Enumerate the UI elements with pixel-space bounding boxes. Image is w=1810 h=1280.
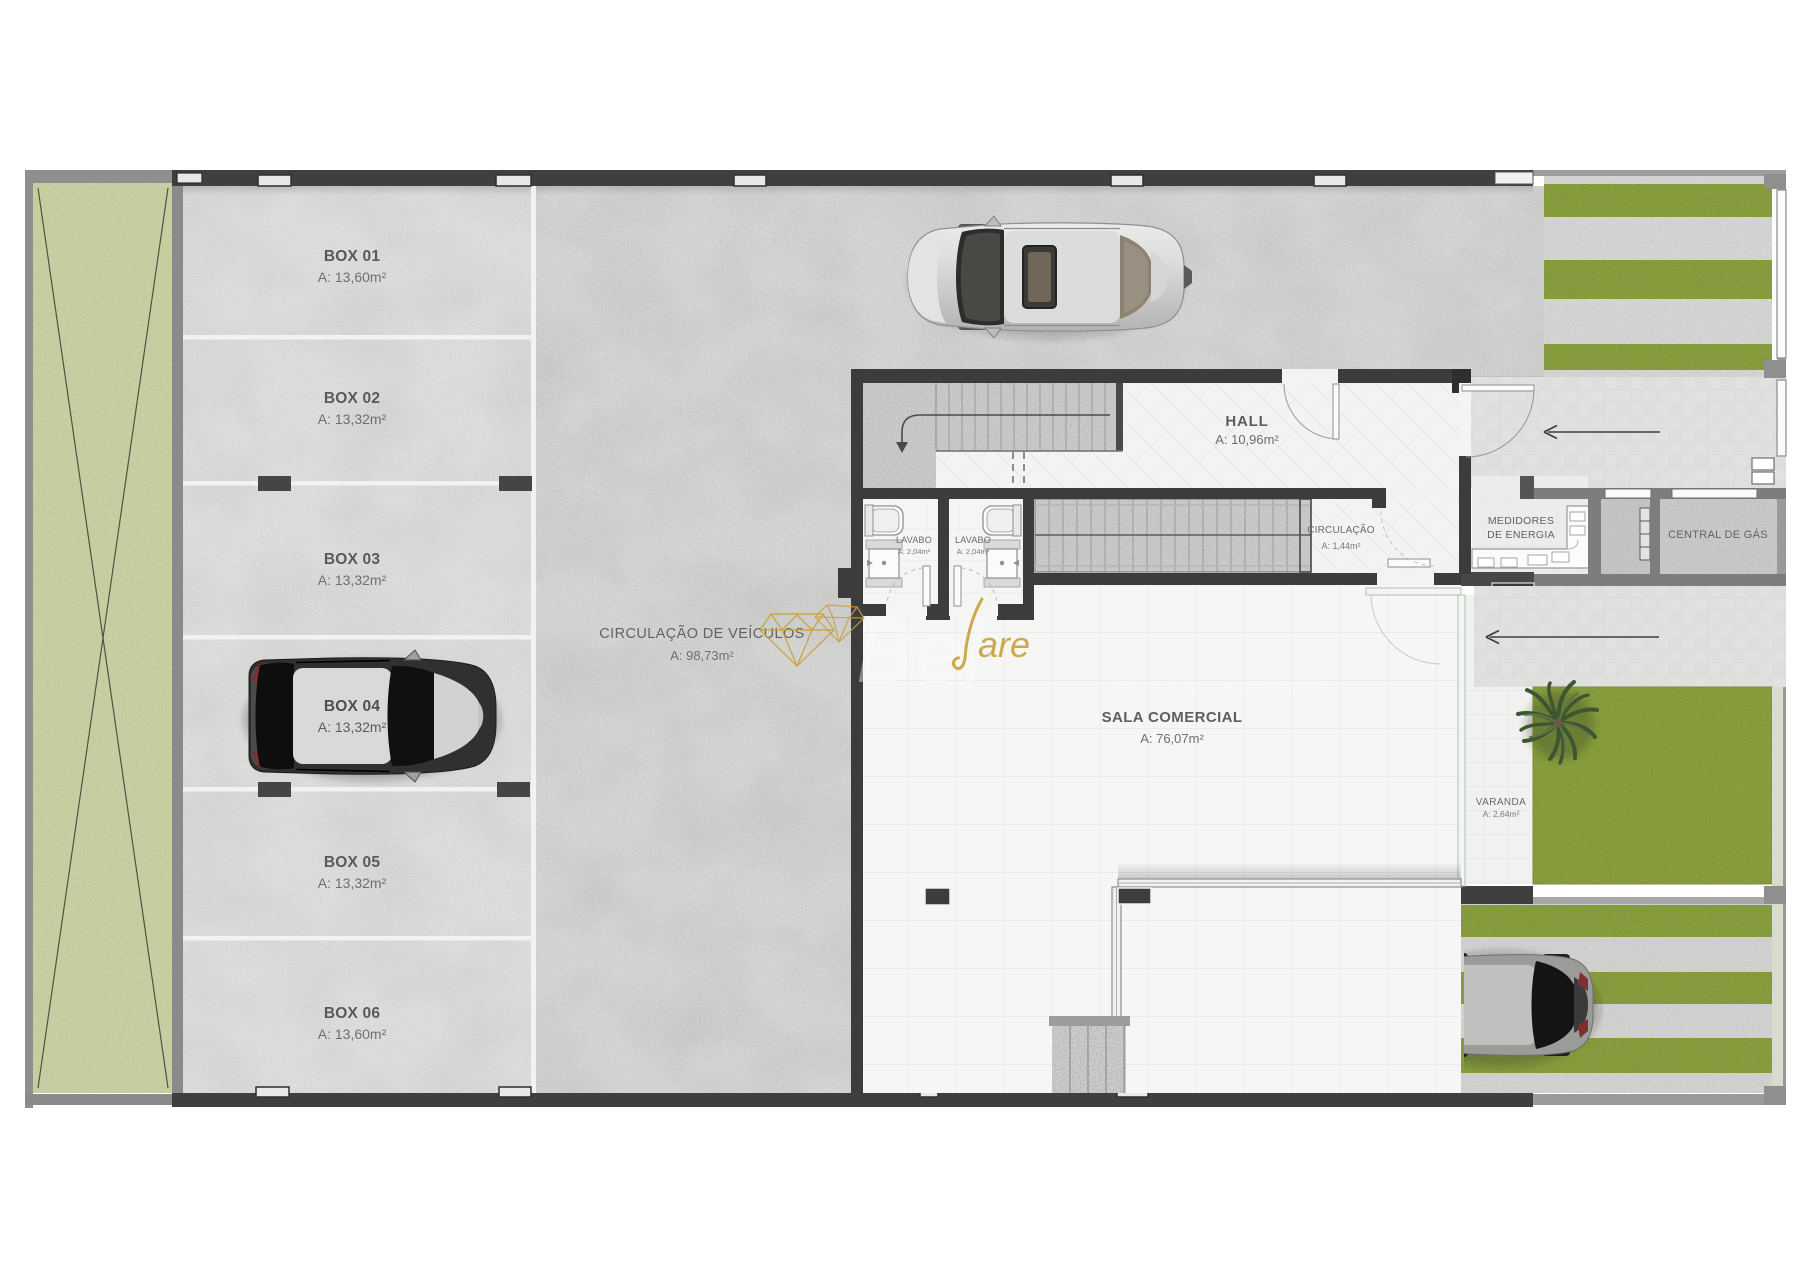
svg-text:A: 13,32m²: A: 13,32m² [318, 719, 387, 735]
svg-text:DE ENERGIA: DE ENERGIA [1487, 529, 1555, 541]
svg-text:A: 13,32m²: A: 13,32m² [318, 572, 387, 588]
svg-text:A: 13,32m²: A: 13,32m² [318, 875, 387, 891]
svg-text:SALA COMERCIAL: SALA COMERCIAL [1102, 709, 1243, 726]
svg-text:BOX 04: BOX 04 [324, 698, 381, 715]
svg-text:A: 2,04m²: A: 2,04m² [957, 547, 990, 556]
svg-text:BOX 01: BOX 01 [324, 248, 381, 265]
svg-text:BOX 06: BOX 06 [324, 1005, 381, 1022]
svg-text:A: 98,73m²: A: 98,73m² [670, 648, 734, 663]
svg-text:CIRCULAÇÃO: CIRCULAÇÃO [1307, 523, 1375, 536]
svg-text:MEDIDORES: MEDIDORES [1488, 515, 1554, 527]
svg-text:CIRCULAÇÃO DE VEÍCULOS: CIRCULAÇÃO DE VEÍCULOS [599, 625, 804, 642]
svg-text:CENTRAL DE GÁS: CENTRAL DE GÁS [1668, 528, 1768, 541]
svg-text:A: 1,44m²: A: 1,44m² [1321, 541, 1360, 551]
svg-text:HALL: HALL [1225, 413, 1268, 430]
svg-text:A: 2,04m²: A: 2,04m² [898, 547, 931, 556]
svg-text:BOX 05: BOX 05 [324, 854, 381, 871]
svg-text:VARANDA: VARANDA [1476, 797, 1526, 808]
svg-text:CONSTRUTORA E INCORPORADORA: CONSTRUTORA E INCORPORADORA [1104, 682, 1332, 692]
svg-text:A: 13,32m²: A: 13,32m² [318, 411, 387, 427]
svg-text:LAVABO: LAVABO [955, 535, 991, 545]
svg-text:are: are [978, 624, 1030, 665]
svg-text:A: 2,64m²: A: 2,64m² [1483, 809, 1520, 819]
svg-text:LAVABO: LAVABO [896, 535, 932, 545]
svg-text:BOX 03: BOX 03 [324, 551, 381, 568]
svg-text:A: 13,60m²: A: 13,60m² [318, 1026, 387, 1042]
svg-text:BOX 02: BOX 02 [324, 390, 380, 407]
svg-text:A: 13,60m²: A: 13,60m² [318, 269, 387, 285]
svg-text:A: 76,07m²: A: 76,07m² [1140, 731, 1204, 746]
svg-text:A: 10,96m²: A: 10,96m² [1215, 432, 1279, 447]
